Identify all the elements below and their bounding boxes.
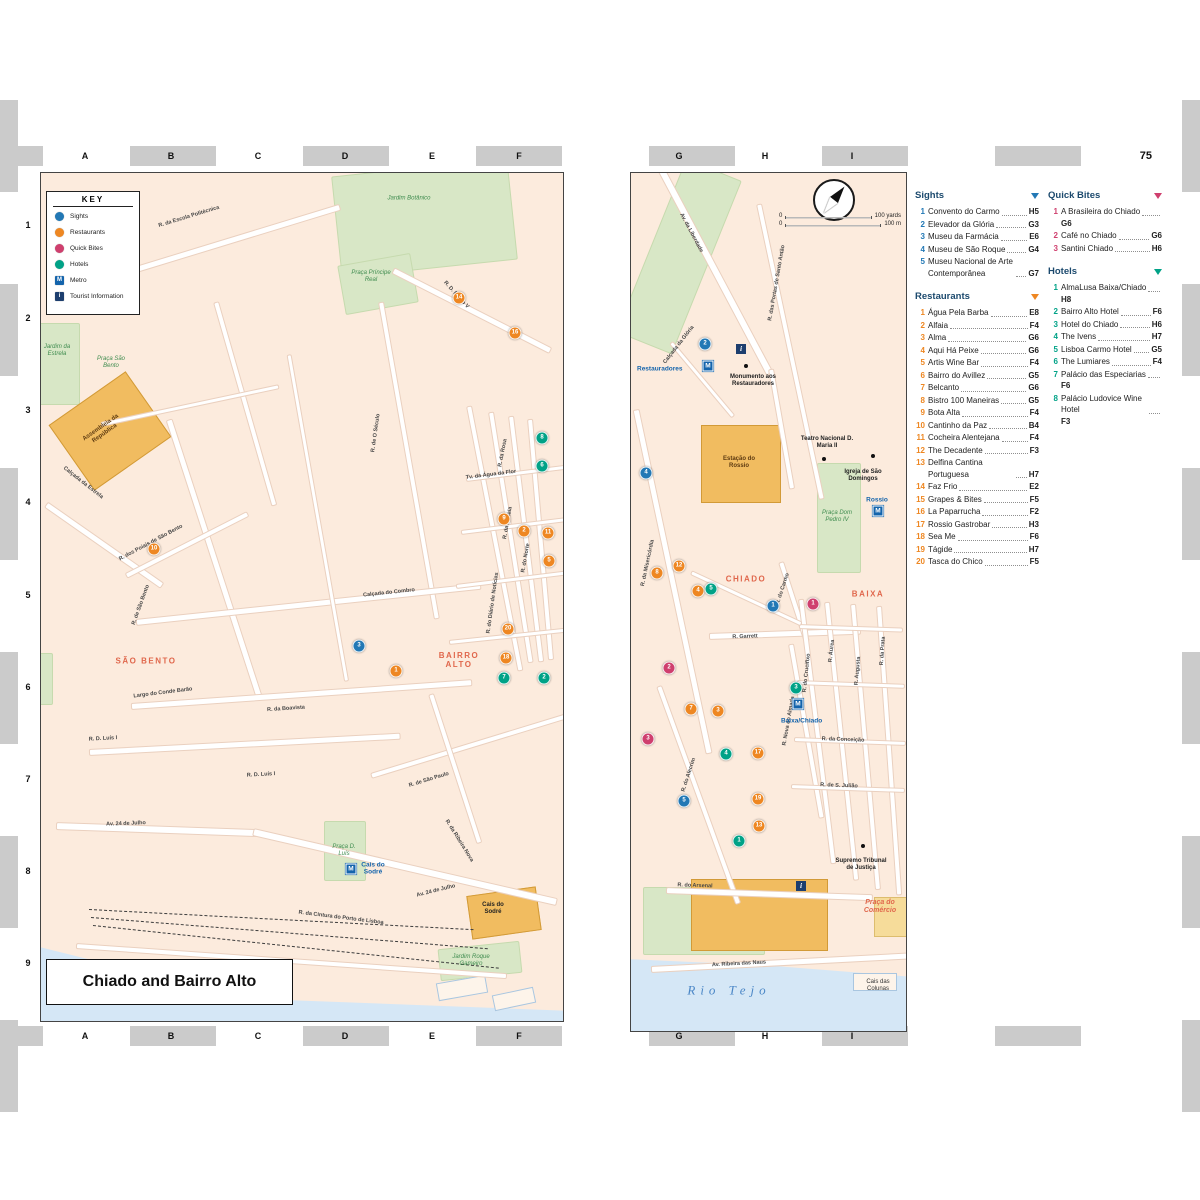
grid-letter-D: D	[342, 151, 349, 161]
dotted-leader	[987, 378, 1026, 379]
tourist-info-icon: i	[796, 881, 806, 891]
dotted-leader	[1121, 315, 1151, 316]
listing-item: 13Delfina Cantina PortuguesaH7	[915, 457, 1039, 480]
map-label: R. de O Século	[370, 413, 382, 452]
listing-body: AlfaiaF4	[928, 320, 1039, 332]
map-label: R. de S. Julião	[820, 782, 858, 790]
listing-body: Lisboa Carmo HotelG5	[1061, 344, 1162, 356]
grid-reference: H7	[1152, 331, 1162, 343]
page-number: 75	[1112, 150, 1152, 162]
dotted-leader	[1007, 252, 1026, 253]
map-marker-r-9: 9	[498, 513, 511, 526]
key-item-sights: Sights	[47, 212, 139, 221]
metro-icon: M	[873, 506, 884, 517]
listing-number: 9	[915, 407, 928, 419]
dotted-leader	[1002, 441, 1028, 442]
dotted-leader	[982, 515, 1027, 516]
map-label: Restauradores	[637, 365, 681, 372]
map-marker-r-2: 2	[518, 525, 531, 538]
map-key: KEY SightsRestaurantsQuick BitesHotelsMM…	[46, 191, 140, 315]
listing-item: 10Cantinho da PazB4	[915, 420, 1039, 432]
listing-item: 1Convento do CarmoH5	[915, 206, 1039, 218]
listing-item: 12The DecadenteF3	[915, 445, 1039, 457]
map-marker-r-11: 11	[542, 527, 555, 540]
listing-name: Alma	[928, 332, 946, 344]
listing-body: TágideH7	[928, 544, 1039, 556]
listings-column-1: Sights1Convento do CarmoH52Elevador da G…	[915, 190, 1039, 569]
scale-line-yards	[785, 216, 871, 219]
dotted-leader	[1112, 365, 1151, 366]
grid-letter-H: H	[762, 151, 769, 161]
listing-name: Hotel do Chiado	[1061, 319, 1118, 331]
listing-number: 20	[915, 556, 928, 568]
grid-reference: F5	[1030, 556, 1039, 568]
landmark-dot	[744, 364, 748, 368]
listing-body: Bota AltaF4	[928, 407, 1039, 419]
listing-name: The Decadente	[928, 445, 983, 457]
listing-item: 2Bairro Alto HotelF6	[1048, 306, 1162, 318]
map-label: SÃO BENTO	[116, 656, 177, 665]
grid-reference: F4	[1030, 407, 1039, 419]
map-label: Av. 24 de Julho	[416, 883, 456, 899]
checker-cell	[0, 284, 18, 376]
listing-body: Cocheira AlentejanaF4	[928, 432, 1039, 444]
listing-number: 18	[915, 531, 928, 543]
street	[287, 354, 350, 682]
listing-item: 3Museu da FarmáciaE6	[915, 231, 1039, 243]
listing-name: Palácio das Especiarias	[1061, 369, 1146, 381]
listing-item: 4Aqui Há PeixeG6	[915, 345, 1039, 357]
map-label: R. Garrett	[732, 633, 758, 640]
map-label: Baixa/Chiado	[781, 717, 821, 724]
metro-icon: M	[346, 864, 357, 875]
listing-number: 7	[1048, 369, 1061, 392]
street	[527, 419, 554, 661]
grid-row-1: 1	[25, 220, 30, 230]
scale-meters: 100 m	[884, 221, 901, 227]
grid-reference: F4	[1153, 356, 1162, 368]
map-marker-r-19: 19	[752, 793, 765, 806]
listing-item: 15Grapes & BitesF5	[915, 494, 1039, 506]
listing-body: Museu de São RoqueG4	[928, 244, 1039, 256]
legend-circle-icon	[55, 260, 64, 269]
dotted-leader	[950, 328, 1028, 329]
listing-number: 16	[915, 506, 928, 518]
landmark-dot	[861, 844, 865, 848]
checker-cell	[822, 146, 909, 166]
scale-line-meters	[785, 224, 881, 227]
key-item-hotels: Hotels	[47, 260, 139, 269]
checker-cell	[0, 836, 18, 928]
section-title: Hotels	[1048, 266, 1077, 277]
dotted-leader	[954, 552, 1026, 553]
checker-cell	[0, 100, 18, 192]
listing-name: Tasca do Chico	[928, 556, 983, 568]
street	[378, 301, 440, 619]
listing-name: La Paparrucha	[928, 506, 980, 518]
grid-reference: G5	[1028, 395, 1039, 407]
grid-letter-A: A	[82, 151, 89, 161]
map-marker-r-20: 20	[502, 623, 515, 636]
listing-name: Lisboa Carmo Hotel	[1061, 344, 1132, 356]
key-item-metro: MMetro	[47, 276, 139, 285]
map-label: Estação do Rossio	[717, 456, 761, 470]
listing-name: Cocheira Alentejana	[928, 432, 1000, 444]
map-label: BAIRRO ALTO	[433, 651, 485, 669]
checker-cell	[0, 1020, 18, 1112]
map-label: Igreja de São Domingos	[840, 469, 886, 483]
listing-body: AlmaLusa Baixa/ChiadoH8	[1061, 282, 1162, 305]
listing-item: 2AlfaiaF4	[915, 320, 1039, 332]
listing-name: Aqui Há Peixe	[928, 345, 979, 357]
map-label: R. D. Luís I	[247, 771, 276, 779]
listing-number: 5	[1048, 344, 1061, 356]
grid-letter-D: D	[342, 1031, 349, 1041]
listing-body: BelcantoG6	[928, 382, 1039, 394]
key-item-label: Quick Bites	[70, 245, 103, 252]
grid-reference: H6	[1152, 319, 1162, 331]
listing-item: 3AlmaG6	[915, 332, 1039, 344]
listing-body: Museu da FarmáciaE6	[928, 231, 1039, 243]
grid-letter-B: B	[168, 151, 175, 161]
listing-number: 1	[915, 206, 928, 218]
listing-name: Sea Me	[928, 531, 956, 543]
park-area	[40, 323, 80, 405]
dotted-leader	[959, 490, 1027, 491]
listing-name: The Lumiares	[1061, 356, 1110, 368]
grid-reference: G6	[1028, 382, 1039, 394]
dotted-leader	[985, 453, 1028, 454]
dotted-leader	[1098, 340, 1150, 341]
map-panel-right: 0 100 yards 0 100 m RestauradoresMonumen…	[630, 172, 907, 1032]
listing-body: Grapes & BitesF5	[928, 494, 1039, 506]
grid-row-2: 2	[25, 313, 30, 323]
listing-item: 8Bistro 100 ManeirasG5	[915, 395, 1039, 407]
listing-item: 8Palácio Ludovice Wine HotelF3	[1048, 393, 1162, 428]
listing-number: 3	[1048, 319, 1061, 331]
key-item-label: Sights	[70, 213, 88, 220]
listing-number: 4	[1048, 331, 1061, 343]
map-marker-r-1: 1	[390, 665, 403, 678]
listing-body: Café no ChiadoG6	[1061, 230, 1162, 242]
map-label: R. da Boavista	[267, 705, 305, 714]
grid-reference: G5	[1028, 370, 1039, 382]
listing-item: 2Elevador da GlóriaG3	[915, 219, 1039, 231]
grid-reference: B4	[1029, 420, 1039, 432]
map-label: Jardim da Estrela	[40, 344, 77, 358]
section-header-sights: Sights	[915, 190, 1039, 201]
map-label: Praça do Comércio	[855, 899, 905, 915]
listing-number: 19	[915, 544, 928, 556]
map-marker-q-2: 2	[663, 662, 676, 675]
map-label: Praça Dom Pedro IV	[814, 510, 860, 524]
map-label: Rossio	[866, 496, 888, 503]
dotted-leader	[1149, 413, 1160, 414]
dotted-leader	[961, 391, 1026, 392]
map-marker-s-4: 4	[640, 467, 653, 480]
key-item-restaurants: Restaurants	[47, 228, 139, 237]
listing-item: 6Bairro do AvillezG5	[915, 370, 1039, 382]
park-area	[40, 653, 53, 705]
railway-line	[89, 909, 474, 930]
map-marker-r-12: 12	[673, 560, 686, 573]
listing-item: 2Café no ChiadoG6	[1048, 230, 1162, 242]
grid-letter-I: I	[851, 1031, 854, 1041]
map-label: R. da Escola Politécnica	[158, 205, 220, 230]
pier	[492, 987, 536, 1011]
map-marker-r-4: 4	[692, 585, 705, 598]
listing-body: Bistro 100 ManeirasG5	[928, 395, 1039, 407]
grid-letter-A: A	[82, 1031, 89, 1041]
listing-name: Café no Chiado	[1061, 230, 1117, 242]
checker-cell	[0, 468, 18, 560]
listing-name: Água Pela Barba	[928, 307, 989, 319]
map-label: Monumento aos Restauradores	[722, 374, 784, 388]
listing-name: Grapes & Bites	[928, 494, 982, 506]
listing-name: Belcanto	[928, 382, 959, 394]
section-header-restaurants: Restaurants	[915, 291, 1039, 302]
street	[252, 828, 558, 906]
dotted-leader	[1001, 403, 1026, 404]
listing-item: 1AlmaLusa Baixa/ChiadoH8	[1048, 282, 1162, 305]
grid-reference: E2	[1029, 481, 1039, 493]
listing-name: Bistro 100 Maneiras	[928, 395, 999, 407]
railway-line	[91, 917, 488, 949]
grid-letter-I: I	[851, 151, 854, 161]
map-marker-r-18: 18	[500, 652, 513, 665]
listing-item: 11Cocheira AlentejanaF4	[915, 432, 1039, 444]
map-panel-left: KEY SightsRestaurantsQuick BitesHotelsMM…	[40, 172, 564, 1022]
listing-body: Cantinho da PazB4	[928, 420, 1039, 432]
section-triangle-icon	[1031, 193, 1039, 199]
grid-reference: F4	[1030, 320, 1039, 332]
listing-number: 4	[915, 345, 928, 357]
grid-reference: G4	[1028, 244, 1039, 256]
listing-item: 4Museu de São RoqueG4	[915, 244, 1039, 256]
grid-row-9: 9	[25, 958, 30, 968]
section-title: Quick Bites	[1048, 190, 1100, 201]
map-label: Praça D. Luís	[327, 844, 361, 858]
grid-reference: F3	[1030, 445, 1039, 457]
map-marker-h-1: 1	[733, 835, 746, 848]
dotted-leader	[958, 540, 1028, 541]
grid-reference: H7	[1029, 544, 1039, 556]
listing-number: 1	[915, 307, 928, 319]
listing-number: 5	[915, 256, 928, 279]
checker-cell	[995, 146, 1082, 166]
checker-cell	[995, 1026, 1082, 1046]
grid-reference: F3	[1061, 416, 1070, 428]
map-label: CHIADO	[726, 574, 767, 583]
grid-reference: G6	[1151, 230, 1162, 242]
dotted-leader	[1120, 327, 1149, 328]
map-marker-h-2: 2	[538, 672, 551, 685]
grid-reference: F5	[1030, 494, 1039, 506]
listing-number: 2	[1048, 306, 1061, 318]
map-marker-s-3: 3	[353, 640, 366, 653]
listing-body: Bairro do AvillezG5	[928, 370, 1039, 382]
listing-number: 3	[915, 332, 928, 344]
map-label: R. do Arsenal	[677, 882, 712, 890]
listing-name: Cantinho da Paz	[928, 420, 987, 432]
listing-body: AlmaG6	[928, 332, 1039, 344]
map-marker-q-1: 1	[807, 598, 820, 611]
listing-name: Elevador da Glória	[928, 219, 994, 231]
dotted-leader	[962, 416, 1028, 417]
checker-cell	[649, 146, 736, 166]
map-label: R. D. Luís I	[89, 735, 118, 743]
listing-name: Alfaia	[928, 320, 948, 332]
listing-name: AlmaLusa Baixa/Chiado	[1061, 282, 1146, 294]
listing-number: 2	[1048, 230, 1061, 242]
key-item-label: Hotels	[70, 261, 88, 268]
map-marker-h-4: 4	[720, 748, 733, 761]
map-label: Cais do Sodré	[474, 902, 512, 916]
grid-letter-C: C	[255, 1031, 262, 1041]
dotted-leader	[996, 227, 1026, 228]
listing-body: Delfina Cantina PortuguesaH7	[928, 457, 1039, 480]
tourist-info-icon: i	[736, 344, 746, 354]
map-label: Praça Príncipe Real	[348, 270, 394, 284]
listing-name: Museu Nacional de Arte Contemporânea	[928, 256, 1014, 279]
dotted-leader	[948, 341, 1026, 342]
listing-body: Bairro Alto HotelF6	[1061, 306, 1162, 318]
checker-cell	[1182, 468, 1200, 560]
listing-body: Convento do CarmoH5	[928, 206, 1039, 218]
grid-letter-H: H	[762, 1031, 769, 1041]
grid-reference: H7	[1029, 469, 1039, 481]
map-marker-r-7: 7	[685, 703, 698, 716]
park-area	[630, 172, 742, 354]
listing-body: Elevador da GlóriaG3	[928, 219, 1039, 231]
map-marker-h-5: 5	[705, 583, 718, 596]
listing-name: A Brasileira do Chiado	[1061, 206, 1140, 218]
grid-letter-E: E	[429, 1031, 435, 1041]
listing-name: Museu de São Roque	[928, 244, 1005, 256]
map-marker-r-13: 13	[753, 820, 766, 833]
listing-name: Faz Frio	[928, 481, 957, 493]
map-marker-s-5: 5	[678, 795, 691, 808]
map-label: R. de São Paulo	[408, 771, 450, 789]
listing-number: 6	[915, 370, 928, 382]
grid-row-6: 6	[25, 682, 30, 692]
map-label: Cais do Sodré	[352, 862, 394, 877]
listing-number: 8	[1048, 393, 1061, 428]
listing-item: 6The LumiaresF4	[1048, 356, 1162, 368]
grid-reference: F2	[1030, 506, 1039, 518]
grid-letter-E: E	[429, 151, 435, 161]
listing-number: 3	[1048, 243, 1061, 255]
map-marker-h-8: 8	[536, 432, 549, 445]
key-title: KEY	[53, 195, 133, 207]
grid-reference: F6	[1153, 306, 1162, 318]
listing-item: 5Lisboa Carmo HotelG5	[1048, 344, 1162, 356]
listing-name: Palácio Ludovice Wine Hotel	[1061, 393, 1147, 416]
key-item-label: Restaurants	[70, 229, 105, 236]
map-marker-r-8: 8	[651, 567, 664, 580]
map-marker-r-5: 5	[543, 555, 556, 568]
key-item-label: Tourist Information	[70, 293, 123, 300]
listing-body: The LumiaresF4	[1061, 356, 1162, 368]
grid-reference: H6	[1152, 243, 1162, 255]
grid-letter-C: C	[255, 151, 262, 161]
map-marker-r-14: 14	[453, 292, 466, 305]
street	[166, 418, 263, 698]
legend-circle-icon	[55, 212, 64, 221]
map-marker-h-3: 3	[790, 682, 803, 695]
listing-number: 15	[915, 494, 928, 506]
section-header-quick_bites: Quick Bites	[1048, 190, 1162, 201]
dotted-leader	[1016, 477, 1027, 478]
listing-number: 12	[915, 445, 928, 457]
map-marker-r-16: 16	[509, 327, 522, 340]
map-marker-h-6: 6	[536, 460, 549, 473]
listing-name: Artis Wine Bar	[928, 357, 979, 369]
tourist-info-icon: i	[55, 292, 64, 301]
listing-item: 3Santini ChiadoH6	[1048, 243, 1162, 255]
map-label: Largo do Conde Barão	[133, 686, 193, 699]
map-marker-q-3: 3	[642, 733, 655, 746]
scale-yards: 100 yards	[875, 213, 901, 219]
map-label: Jardim Roque Gameiro	[441, 954, 501, 968]
dotted-leader	[992, 527, 1027, 528]
checker-cell	[1182, 100, 1200, 192]
map-label: Supremo Tribunal de Justiça	[835, 858, 887, 872]
listing-number: 7	[915, 382, 928, 394]
listing-body: Aqui Há PeixeG6	[928, 345, 1039, 357]
dotted-leader	[1119, 239, 1150, 240]
grid-reference: G3	[1028, 219, 1039, 231]
listing-body: The IvensH7	[1061, 331, 1162, 343]
section-header-hotels: Hotels	[1048, 266, 1162, 277]
listing-number: 4	[915, 244, 928, 256]
listing-item: 5Museu Nacional de Arte ContemporâneaG7	[915, 256, 1039, 279]
map-label: Tv. da Água da Flor	[465, 469, 516, 481]
grid-reference: E6	[1029, 231, 1039, 243]
listing-body: Tasca do ChicoF5	[928, 556, 1039, 568]
map-label: Cais das Colunas	[858, 979, 898, 993]
dotted-leader	[1134, 352, 1150, 353]
listing-number: 6	[1048, 356, 1061, 368]
grid-reference: F4	[1030, 357, 1039, 369]
metro-icon: M	[703, 361, 714, 372]
grid-reference: G5	[1151, 344, 1162, 356]
dotted-leader	[1002, 215, 1027, 216]
metro-icon: M	[55, 276, 64, 285]
grid-reference: H3	[1029, 519, 1039, 531]
listing-number: 2	[915, 320, 928, 332]
grid-row-7: 7	[25, 774, 30, 784]
section-triangle-icon	[1154, 269, 1162, 275]
section-title: Sights	[915, 190, 944, 201]
listing-item: 19TágideH7	[915, 544, 1039, 556]
listing-number: 1	[1048, 282, 1061, 305]
listing-item: 14Faz FrioE2	[915, 481, 1039, 493]
checker-cell	[1182, 1020, 1200, 1112]
legend-circle-icon	[55, 228, 64, 237]
street	[456, 570, 564, 589]
scale-bar: 0 100 yards 0 100 m	[779, 213, 901, 229]
section-title: Restaurants	[915, 291, 970, 302]
listing-number: 2	[915, 219, 928, 231]
grid-row-4: 4	[25, 497, 30, 507]
dotted-leader	[981, 366, 1028, 367]
listing-number: 10	[915, 420, 928, 432]
listing-body: Água Pela BarbaE8	[928, 307, 1039, 319]
legend-circle-icon	[55, 244, 64, 253]
listing-name: Museu da Farmácia	[928, 231, 999, 243]
dotted-leader	[1001, 240, 1028, 241]
